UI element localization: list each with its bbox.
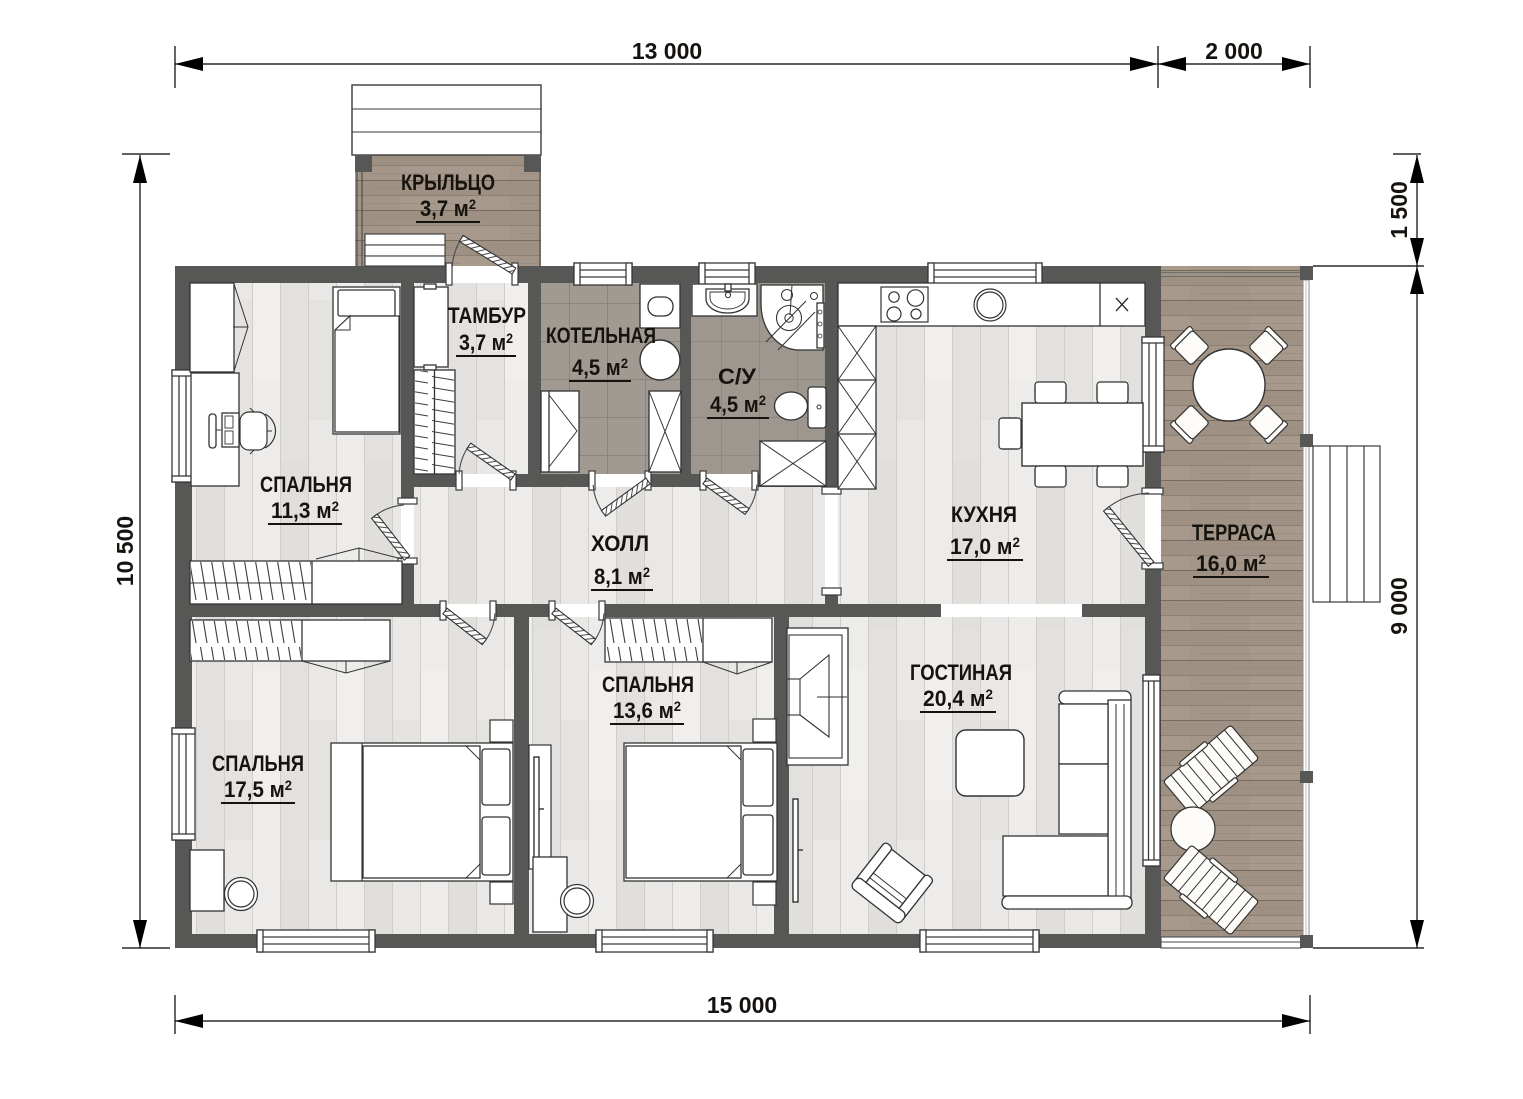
svg-text:ТАМБУР: ТАМБУР: [448, 303, 526, 328]
svg-text:3,7 м2: 3,7 м2: [420, 196, 476, 221]
svg-text:СПАЛЬНЯ: СПАЛЬНЯ: [212, 751, 304, 776]
svg-text:КУХНЯ: КУХНЯ: [951, 502, 1017, 527]
svg-text:17,5 м2: 17,5 м2: [224, 777, 292, 802]
svg-text:10 500: 10 500: [112, 516, 138, 586]
svg-text:13 000: 13 000: [632, 38, 702, 64]
svg-text:ХОЛЛ: ХОЛЛ: [591, 531, 649, 556]
svg-text:20,4 м2: 20,4 м2: [923, 686, 993, 711]
svg-text:3,7 м2: 3,7 м2: [459, 330, 513, 355]
svg-text:11,3 м2: 11,3 м2: [271, 498, 339, 523]
svg-text:13,6 м2: 13,6 м2: [613, 698, 681, 723]
svg-text:2 000: 2 000: [1205, 38, 1263, 64]
svg-text:СПАЛЬНЯ: СПАЛЬНЯ: [602, 672, 694, 697]
svg-text:16,0 м2: 16,0 м2: [1196, 551, 1266, 576]
svg-text:9 000: 9 000: [1386, 577, 1412, 635]
svg-text:СПАЛЬНЯ: СПАЛЬНЯ: [260, 472, 352, 497]
svg-text:1 500: 1 500: [1386, 181, 1412, 239]
svg-text:ТЕРРАСА: ТЕРРАСА: [1192, 520, 1276, 545]
svg-text:8,1 м2: 8,1 м2: [594, 564, 650, 589]
svg-text:ГОСТИНАЯ: ГОСТИНАЯ: [910, 660, 1012, 685]
svg-text:КОТЕЛЬНАЯ: КОТЕЛЬНАЯ: [546, 323, 656, 348]
svg-text:17,0 м2: 17,0 м2: [950, 534, 1020, 559]
svg-text:КРЫЛЬЦО: КРЫЛЬЦО: [401, 170, 495, 195]
svg-text:С/У: С/У: [718, 364, 756, 389]
svg-text:15 000: 15 000: [707, 992, 777, 1018]
svg-text:4,5 м2: 4,5 м2: [572, 355, 628, 380]
svg-text:4,5 м2: 4,5 м2: [710, 392, 766, 417]
